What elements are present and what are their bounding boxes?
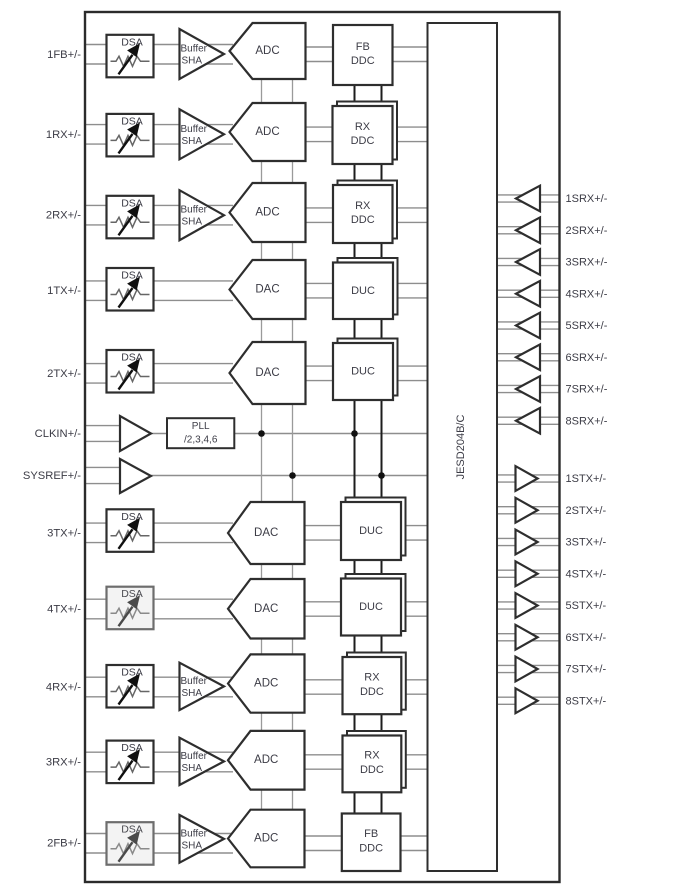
svg-text:3TX+/-: 3TX+/- [47,527,81,539]
svg-text:RX: RX [355,200,371,212]
svg-text:SHA: SHA [182,136,203,147]
svg-text:ADC: ADC [255,207,279,219]
svg-text:SHA: SHA [182,840,203,851]
svg-text:3RX+/-: 3RX+/- [46,757,81,769]
svg-text:2RX+/-: 2RX+/- [46,210,81,222]
svg-text:/2,3,4,6: /2,3,4,6 [184,434,218,445]
svg-text:DDC: DDC [351,214,375,226]
svg-text:DSA: DSA [121,742,143,754]
svg-text:2FB+/-: 2FB+/- [47,838,81,850]
svg-text:DUC: DUC [359,525,383,537]
svg-text:8SRX+/-: 8SRX+/- [566,415,608,427]
svg-text:7SRX+/-: 7SRX+/- [566,384,608,396]
svg-text:PLL: PLL [192,421,210,432]
svg-text:4RX+/-: 4RX+/- [46,682,81,694]
svg-text:5STX+/-: 5STX+/- [566,600,607,612]
svg-text:DDC: DDC [360,764,384,776]
svg-text:DSA: DSA [121,824,143,836]
svg-text:8STX+/-: 8STX+/- [566,695,607,707]
svg-text:ADC: ADC [254,833,278,845]
svg-text:JESD204B/C: JESD204B/C [455,415,467,480]
svg-text:DAC: DAC [255,284,279,296]
svg-text:4STX+/-: 4STX+/- [566,568,607,580]
svg-text:DSA: DSA [121,270,143,282]
svg-text:RX: RX [355,121,371,133]
svg-text:FB: FB [356,41,370,53]
svg-text:DSA: DSA [121,588,143,600]
svg-text:7STX+/-: 7STX+/- [566,664,607,676]
svg-text:DAC: DAC [255,367,279,379]
svg-text:DSA: DSA [121,115,143,127]
svg-text:2SRX+/-: 2SRX+/- [566,225,608,237]
svg-text:ADC: ADC [255,126,279,138]
svg-text:CLKIN+/-: CLKIN+/- [35,428,82,440]
svg-text:ADC: ADC [254,678,278,690]
svg-text:Buffer: Buffer [181,44,208,55]
svg-text:1FB+/-: 1FB+/- [47,49,81,61]
svg-text:DSA: DSA [121,511,143,523]
svg-text:RX: RX [364,750,380,762]
svg-text:ADC: ADC [255,45,279,57]
svg-text:SHA: SHA [182,688,203,699]
svg-text:DUC: DUC [351,366,375,378]
svg-text:RX: RX [364,671,380,683]
svg-text:DSA: DSA [121,667,143,679]
svg-text:1SRX+/-: 1SRX+/- [566,193,608,205]
svg-text:4TX+/-: 4TX+/- [47,604,81,616]
svg-text:SHA: SHA [182,763,203,774]
svg-text:DAC: DAC [254,527,278,539]
svg-text:1TX+/-: 1TX+/- [47,285,81,297]
svg-text:DDC: DDC [359,842,383,854]
svg-text:DUC: DUC [359,601,383,613]
svg-text:DDC: DDC [351,135,375,147]
svg-text:DSA: DSA [121,352,143,364]
svg-text:SHA: SHA [182,56,203,67]
svg-text:5SRX+/-: 5SRX+/- [566,320,608,332]
svg-text:SHA: SHA [182,217,203,228]
svg-text:2TX+/-: 2TX+/- [47,368,81,380]
svg-text:FB: FB [364,828,378,840]
svg-text:ADC: ADC [254,754,278,766]
svg-text:3SRX+/-: 3SRX+/- [566,257,608,269]
svg-text:Buffer: Buffer [181,828,208,839]
svg-text:6STX+/-: 6STX+/- [566,632,607,644]
svg-text:DDC: DDC [351,55,375,67]
svg-text:DUC: DUC [351,285,375,297]
svg-text:Buffer: Buffer [181,676,208,687]
svg-text:DSA: DSA [121,36,143,48]
svg-text:4SRX+/-: 4SRX+/- [566,288,608,300]
svg-text:6SRX+/-: 6SRX+/- [566,352,608,364]
svg-text:1STX+/-: 1STX+/- [566,473,607,485]
svg-text:2STX+/-: 2STX+/- [566,505,607,517]
svg-text:1RX+/-: 1RX+/- [46,129,81,141]
svg-text:DDC: DDC [360,686,384,698]
svg-text:Buffer: Buffer [181,751,208,762]
svg-text:SYSREF+/-: SYSREF+/- [23,470,81,482]
svg-text:DAC: DAC [254,603,278,615]
svg-text:DSA: DSA [121,197,143,209]
svg-text:Buffer: Buffer [181,205,208,216]
svg-text:Buffer: Buffer [181,124,208,135]
svg-text:3STX+/-: 3STX+/- [566,537,607,549]
